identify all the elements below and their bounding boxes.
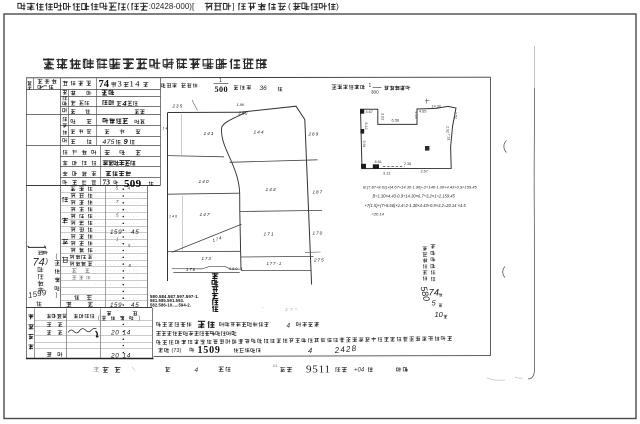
svg-text:(73): (73) [172,348,182,354]
svg-text:7.31: 7.31 [447,134,451,141]
svg-text:(: ( [56,254,58,260]
svg-text:=20.14: =20.14 [372,212,385,217]
svg-text:235: 235 [172,104,184,109]
svg-text:500: 500 [215,85,228,94]
svg-text:10: 10 [435,310,444,319]
svg-text:143: 143 [266,187,277,193]
svg-text:144: 144 [254,130,265,136]
svg-text:140: 140 [199,179,210,185]
svg-text:4: 4 [308,346,312,355]
svg-text:111: 111 [273,364,278,368]
svg-text:14: 14 [123,330,131,337]
svg-text:4: 4 [287,323,291,330]
svg-text:1: 1 [219,78,222,84]
svg-text:6.56: 6.56 [392,117,401,122]
svg-text:170: 170 [313,231,324,236]
svg-text:4: 4 [195,367,199,374]
svg-text:177-1: 177-1 [267,261,283,266]
svg-text:4: 4 [122,99,128,108]
svg-text:45: 45 [131,229,139,236]
svg-text:74: 74 [33,257,45,269]
svg-text:289: 289 [308,132,320,137]
svg-text:(: ( [288,1,291,11]
svg-text:1: 1 [116,237,118,242]
svg-text::02428-000)[: :02428-000)[ [149,2,195,11]
svg-text:14: 14 [130,79,142,89]
svg-text:1509: 1509 [198,345,221,356]
svg-text:8.61: 8.61 [375,160,382,164]
svg-text:74: 74 [429,288,440,299]
svg-text:3.94: 3.94 [362,141,366,148]
svg-text:B:(7.87+8.61)×(4.67+14.30-1.96: B:(7.87+8.61)×(4.67+14.30-1.96)÷2=146-1.… [363,185,478,190]
svg-text:45: 45 [131,302,139,309]
svg-text:141: 141 [204,131,215,137]
svg-text:2.52: 2.52 [454,112,458,119]
svg-text:14: 14 [163,127,169,131]
svg-text:147: 147 [200,212,211,218]
svg-text:14.30: 14.30 [432,104,442,108]
svg-text:+7(1.5)+(7+8.66)×1.4÷2-1.30×4.: +7(1.5)+(7+8.66)×1.4÷2-1.30×4.43+0.9×3.2… [365,203,467,208]
svg-text:146: 146 [169,215,178,219]
svg-text:20: 20 [110,353,119,360]
svg-text:+04: +04 [354,368,365,374]
svg-text:173: 173 [202,256,212,261]
svg-text:582.586-10.....594-2.: 582.586-10.....594-2. [150,302,191,307]
svg-text:): ) [336,1,339,11]
svg-text:2.67: 2.67 [421,169,428,173]
svg-text:B=1.30×4.43-0.9+14.30×6.7+3.2×: B=1.30×4.43-0.9+14.30×6.7+3.2×1=2.159.45 [373,194,456,199]
svg-text:]: ] [232,2,234,11]
svg-text:4.65: 4.65 [419,109,426,113]
svg-text:475: 475 [103,139,115,146]
svg-text:2.92: 2.92 [445,126,449,133]
svg-text:1: 1 [369,83,372,89]
svg-text:14: 14 [123,353,131,360]
svg-text:1.96: 1.96 [237,103,245,107]
svg-text:2.38: 2.38 [404,162,411,166]
svg-text:300: 300 [371,90,379,95]
svg-text:187: 187 [313,190,324,195]
svg-text:): ) [45,257,49,266]
svg-text:4.67: 4.67 [366,110,373,114]
svg-text:36: 36 [260,85,268,92]
svg-text:176: 176 [186,267,196,272]
svg-text:73: 73 [103,178,111,187]
svg-text:6.42: 6.42 [364,123,368,130]
svg-text:20: 20 [110,330,119,337]
svg-text:171: 171 [264,232,275,238]
svg-text:275: 275 [313,258,325,263]
svg-text:3.02: 3.02 [381,113,385,120]
svg-text:159: 159 [110,302,122,309]
svg-text:3.13: 3.13 [383,172,390,176]
svg-text:3: 3 [118,79,122,89]
svg-text:159: 159 [110,229,122,236]
svg-text:180-1: 180-1 [229,267,244,271]
svg-text:): ) [56,293,58,299]
svg-text:(: ( [127,1,130,11]
svg-text:9511: 9511 [306,364,331,376]
svg-text:74: 74 [99,79,110,90]
svg-text:365: 365 [395,86,402,91]
svg-text:282: 282 [238,111,249,116]
svg-text:3. 7. *.: 3. 7. *. [285,307,298,312]
svg-text:4.43: 4.43 [414,112,418,119]
